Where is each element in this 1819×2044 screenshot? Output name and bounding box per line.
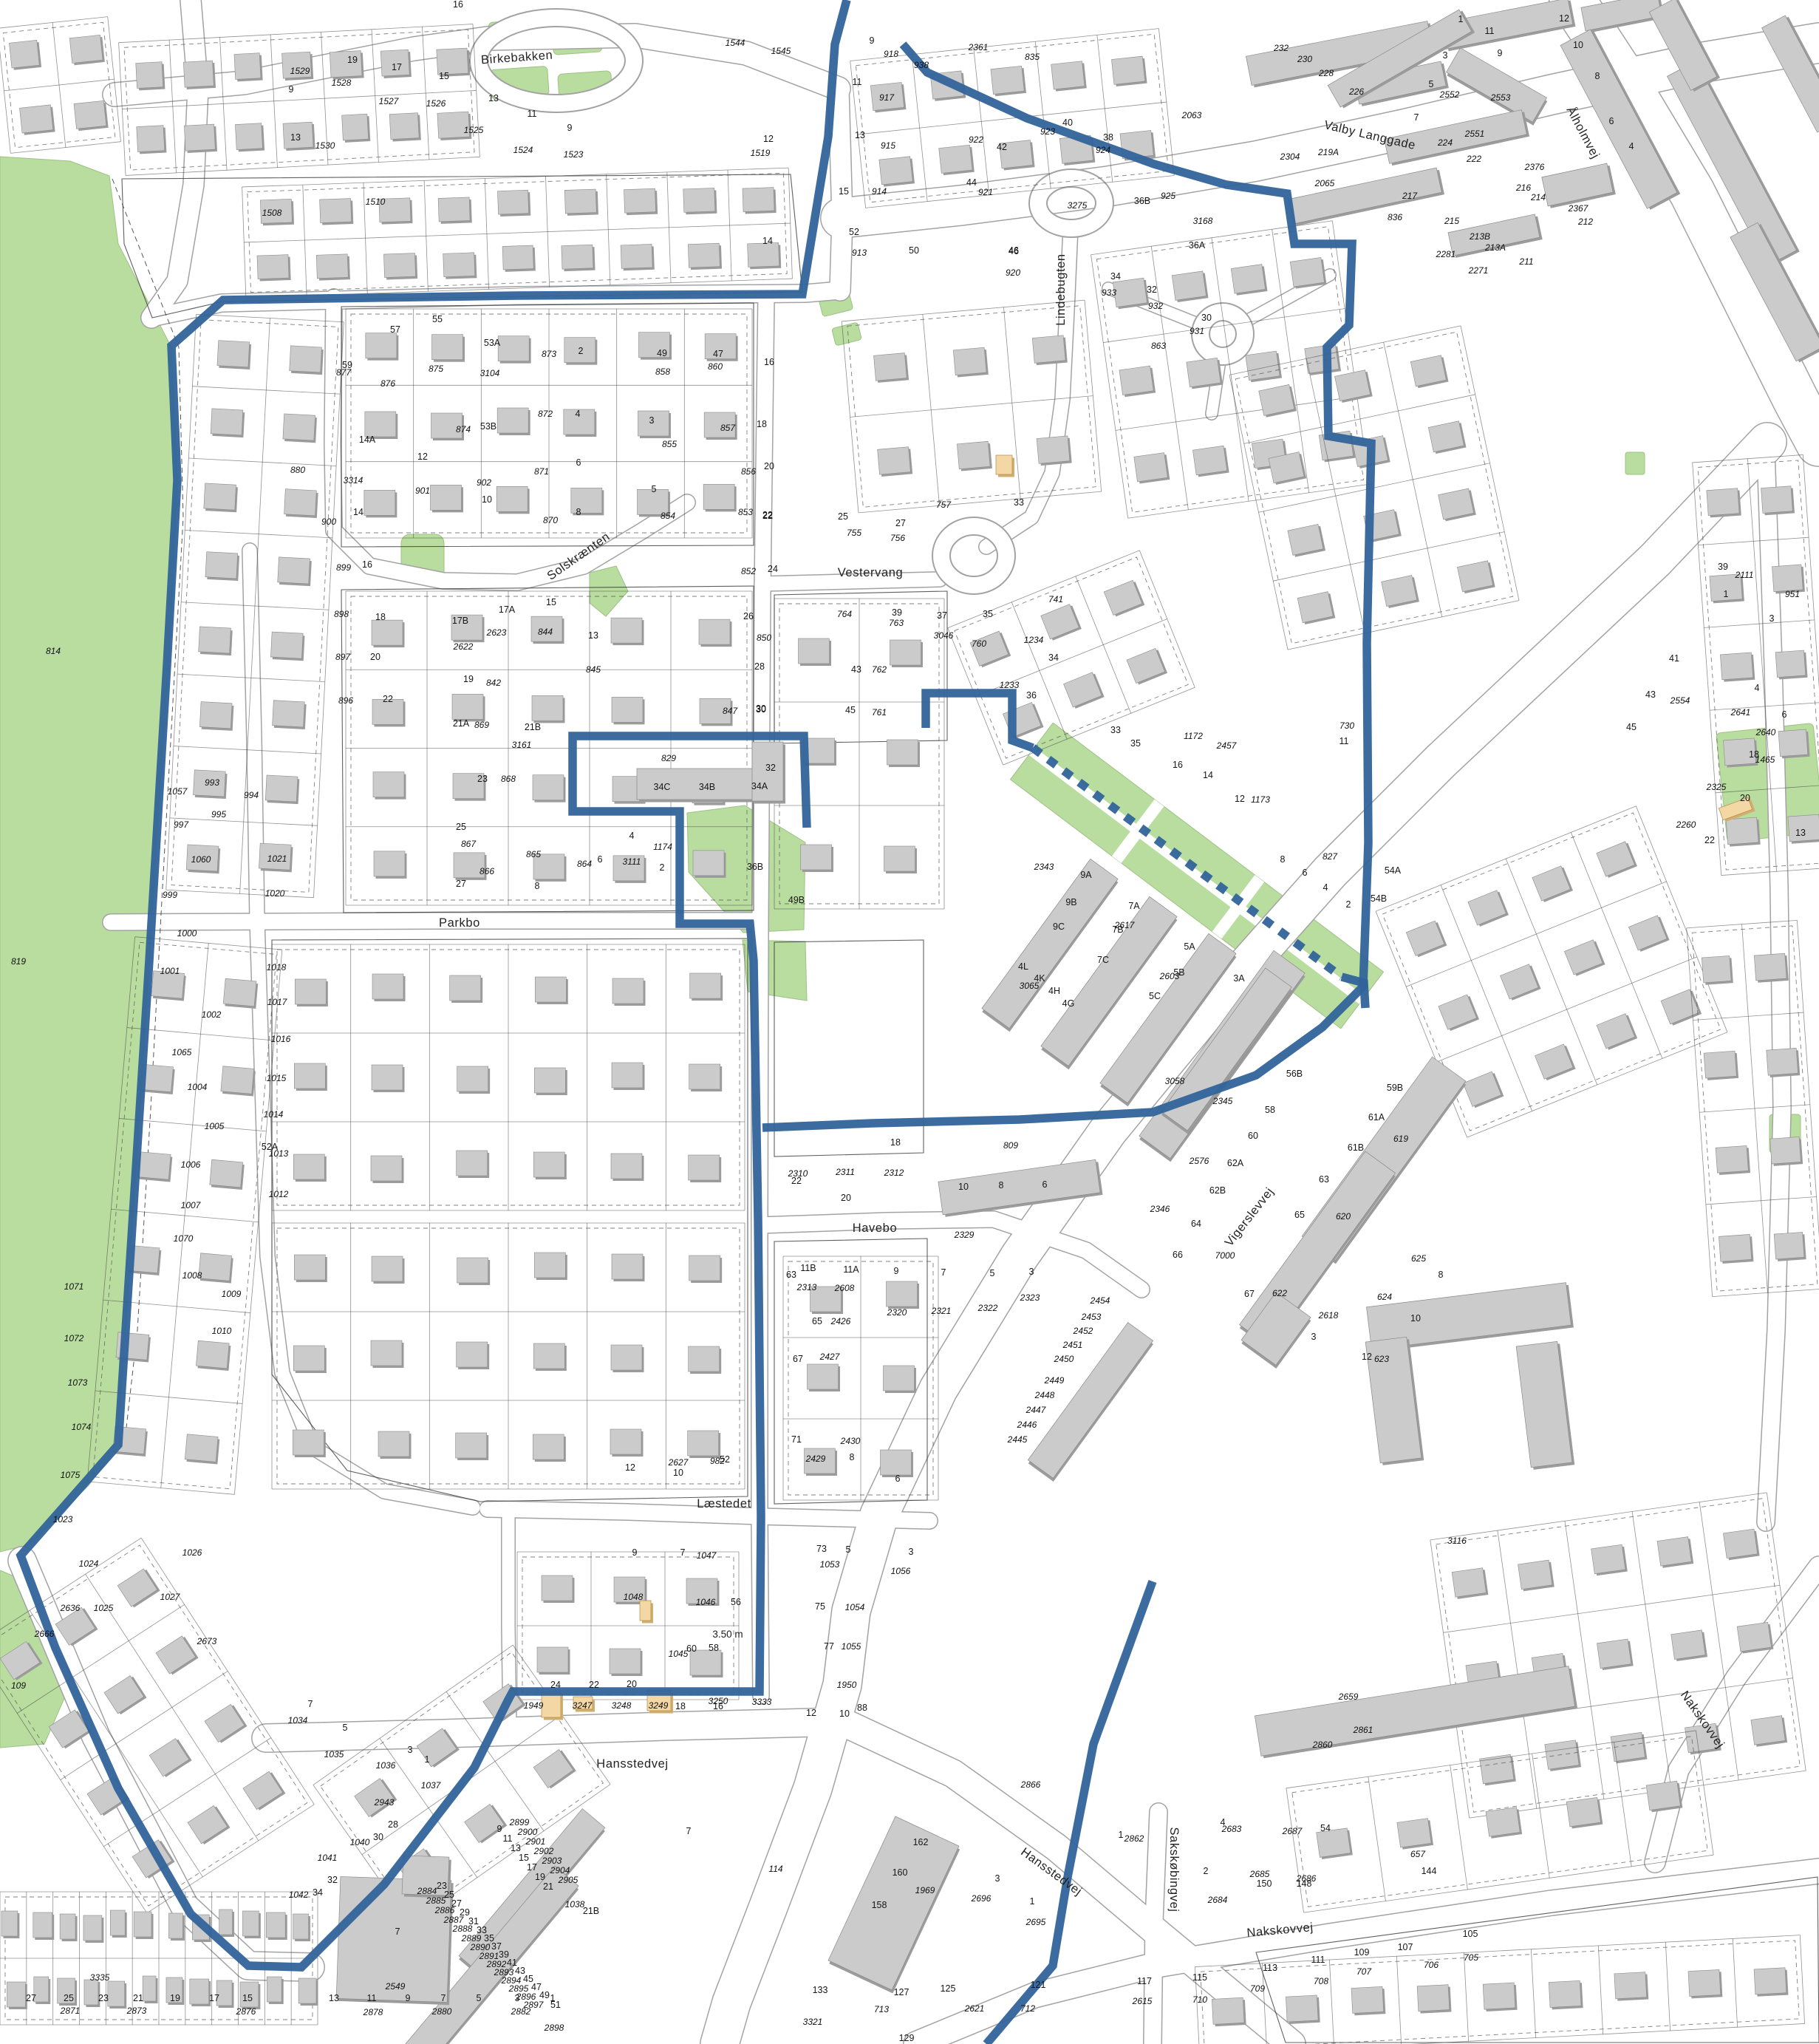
parcel-number-label: 847: [723, 706, 738, 716]
parcel-line: [1368, 1776, 1386, 1901]
parcel-number-label: 853: [738, 507, 753, 517]
house-number-label: 21B: [583, 1906, 599, 1916]
house-number-label: 6: [895, 1474, 901, 1484]
building: [1, 1911, 18, 1936]
building: [612, 697, 643, 722]
house-number-label: 3: [1769, 613, 1775, 624]
house-number-label: 21A: [453, 718, 470, 729]
house-number-label: 22: [589, 1680, 599, 1690]
building: [612, 1254, 643, 1279]
map-canvas[interactable]: 1529152815271526152515241523153015101508…: [0, 0, 1819, 2044]
house-number-label: 24: [550, 1680, 561, 1690]
house-number-label: 39: [892, 607, 902, 618]
house-number-label: 4: [576, 409, 581, 419]
parcel-number-label: 2904: [550, 1865, 570, 1876]
parcel-line: [1665, 1942, 1670, 2031]
parcel-number-label: 2576: [1189, 1156, 1209, 1166]
house-number-label: 17A: [499, 604, 516, 615]
building: [74, 101, 106, 129]
house-number-label: 5: [846, 1544, 851, 1555]
building: [372, 1256, 403, 1281]
parcel-number-label: 2551: [1464, 129, 1485, 139]
parcel-number-label: 876: [380, 378, 395, 389]
building: [1452, 1568, 1486, 1598]
building: [624, 188, 655, 213]
building: [1037, 436, 1070, 464]
house-number-label: 64: [1191, 1219, 1201, 1229]
parcel-number-label: 1020: [265, 888, 285, 899]
building: [1726, 817, 1758, 845]
building: [1772, 565, 1803, 592]
house-number-label: 162: [913, 1837, 929, 1847]
parcel-number-label: 2902: [533, 1846, 554, 1856]
parcel-number-label: 623: [1374, 1354, 1389, 1364]
house-number-label: 9A: [1080, 870, 1092, 880]
house-number-label: 53B: [480, 421, 496, 432]
house-number-label: 15: [839, 186, 849, 197]
parcel-number-label: 925: [1161, 191, 1175, 201]
parcel-number-label: 1034: [288, 1715, 308, 1726]
house-number-label: 77: [824, 1641, 834, 1652]
house-number-label: 15: [242, 1993, 253, 2003]
house-number-label: 32: [327, 1875, 338, 1885]
street-name-label: Lindebugten: [1054, 253, 1068, 325]
building: [957, 441, 990, 469]
parcel-number-label: 3104: [480, 368, 500, 378]
house-number-label: 3: [408, 1745, 413, 1755]
building: [1671, 1630, 1705, 1660]
house-number-label: 2: [660, 862, 665, 873]
building: [1751, 1716, 1785, 1745]
house-number-label: 9: [497, 1824, 502, 1834]
building: [690, 1650, 721, 1675]
house-number-label: 45: [1626, 722, 1637, 732]
house-number-label: 88: [857, 1703, 867, 1713]
parcel-number-label: 2882: [511, 2006, 531, 2017]
parcel-number-label: 114: [768, 1864, 782, 1874]
measurement-annotation: 3.50 m: [712, 1629, 743, 1640]
building: [688, 243, 720, 268]
parcel-number-label: 3333: [752, 1697, 772, 1707]
building: [117, 1569, 157, 1607]
house-number-label: 4: [1755, 683, 1760, 693]
parcel-number-label: 2878: [363, 2007, 383, 2017]
road: [1766, 451, 1782, 1522]
building: [7, 1982, 25, 2007]
parcel-number-label: 3161: [512, 740, 532, 750]
building: [533, 1152, 564, 1177]
building: [1397, 1819, 1431, 1848]
building: [1720, 653, 1753, 680]
parcel-number-label: 864: [577, 859, 592, 869]
parcel-number-label: 915: [881, 140, 895, 151]
house-number-label: 25: [64, 1993, 74, 2003]
parcel-number-label: 914: [872, 186, 887, 197]
parcel-number-label: 1001: [160, 966, 180, 976]
house-number-label: 63: [786, 1270, 796, 1280]
parcel-number-label: 2449: [1044, 1375, 1065, 1386]
parcel-number-label: 620: [1336, 1211, 1351, 1222]
parcel-number-label: 224: [1437, 137, 1453, 148]
parcel-number-label: 1072: [64, 1333, 84, 1343]
house-number-label: 9: [632, 1547, 638, 1558]
parcel-number-label: 2603: [1159, 971, 1180, 981]
house-number-label: 7: [1414, 112, 1419, 123]
house-number-label: 11: [528, 109, 537, 119]
building: [1707, 488, 1739, 516]
building: [210, 1159, 243, 1188]
building: [1351, 1986, 1384, 2013]
parcel-number-label: 2903: [542, 1856, 562, 1866]
parcel-number-label: 2608: [834, 1283, 855, 1293]
house-number-label: 7A: [1128, 901, 1140, 911]
parcel-number-label: 2876: [236, 2006, 256, 2017]
road: [111, 921, 760, 922]
house-number-label: 25: [838, 511, 848, 522]
parcel-number-label: 1046: [696, 1597, 716, 1607]
building: [373, 772, 404, 797]
parcel-number-label: 764: [837, 609, 852, 619]
parcel-number-label: 900: [321, 517, 336, 527]
building: [293, 1430, 324, 1455]
house-number-label: 43: [1645, 689, 1656, 700]
house-number-label: 20: [627, 1679, 637, 1689]
parcel-number-label: 757: [936, 500, 952, 510]
building-group: [1542, 163, 1616, 208]
building: [243, 1771, 283, 1809]
house-number-label: 14A: [359, 435, 376, 445]
house-number-label: 16: [453, 0, 463, 10]
house-number-label: 18: [890, 1137, 901, 1148]
building: [372, 620, 403, 645]
building: [456, 1433, 487, 1458]
house-number-label: 41: [1669, 653, 1679, 664]
parcel-number-label: 214: [1530, 192, 1546, 202]
parcel-number-label: 213B: [1469, 231, 1490, 242]
house-number-label: 35: [1130, 738, 1141, 749]
house-number-label: 2: [1204, 1866, 1209, 1876]
building: [438, 197, 470, 222]
house-number-label: 2: [1346, 899, 1351, 910]
parcel-number-label: 856: [741, 466, 756, 477]
house-number-label: 33: [1110, 725, 1121, 735]
parcel-number-label: 951: [1785, 589, 1800, 599]
house-number-label: 5A: [1184, 941, 1195, 952]
building: [1597, 1639, 1631, 1669]
parcel-number-label: 212: [1577, 217, 1593, 227]
house-number-label: 12: [1559, 13, 1569, 24]
house-number-label: 9: [406, 1993, 411, 2003]
building: [450, 975, 481, 1001]
cadastral-map-view: 1529152815271526152515241523153015101508…: [0, 0, 1819, 2044]
building: [60, 1914, 75, 1939]
house-number-label: 26: [743, 611, 754, 621]
house-number-label: 66: [1173, 1250, 1183, 1260]
house-number-label: 33: [1014, 497, 1024, 508]
house-number-label: 36A: [1189, 240, 1206, 251]
parcel-number-label: 1065: [172, 1047, 192, 1057]
building: [389, 113, 419, 140]
building: [1032, 335, 1065, 364]
building-group: [1255, 1666, 1577, 1759]
house-number-label: 20: [370, 652, 380, 662]
parcel-number-label: 2448: [1034, 1390, 1055, 1400]
road: [266, 1722, 842, 1738]
building: [383, 253, 415, 278]
building-group: [1026, 1323, 1155, 1482]
parcel-number-label: 2329: [954, 1230, 975, 1240]
parcel-number-label: 913: [852, 248, 867, 258]
building: [234, 53, 261, 80]
street-name-label: Læstedet: [697, 1497, 751, 1510]
building: [808, 1364, 839, 1389]
parcel-number-label: 2063: [1181, 110, 1202, 120]
parcel-number-label: 1174: [653, 842, 672, 852]
parcel-number-label: 2260: [1676, 820, 1696, 830]
parcel-line: [1710, 703, 1819, 710]
building: [611, 1154, 642, 1179]
parcel-line: [1733, 1938, 1737, 2027]
parcel-number-label: 1526: [426, 98, 446, 109]
parcel-number-label: 2451: [1062, 1340, 1083, 1350]
parcel-number-label: 2659: [1338, 1692, 1359, 1702]
parcel-grid: [1687, 920, 1819, 1296]
parcel-number-label: 869: [474, 720, 489, 730]
parcel-number-label: 1008: [182, 1270, 202, 1281]
parcel-number-label: 2111: [1735, 570, 1754, 580]
house-number-label: 56B: [1286, 1069, 1303, 1079]
parcel-number-label: 854: [661, 511, 675, 521]
house-number-label: 49: [657, 348, 667, 358]
building: [690, 973, 721, 998]
building: [1305, 344, 1339, 374]
parcel-number-label: 897: [335, 652, 351, 662]
parcel-number-label: 896: [338, 695, 353, 706]
house-number-label: 13: [1795, 828, 1806, 838]
parcel-number-label: 1529: [290, 66, 310, 76]
parcel-number-label: 997: [174, 820, 189, 830]
building: [1111, 56, 1144, 84]
building: [699, 619, 730, 644]
building: [689, 1256, 720, 1281]
building: [265, 775, 298, 802]
house-number-label: 7: [395, 1927, 400, 1937]
building: [611, 1345, 642, 1370]
house-number-label: 44: [966, 177, 977, 188]
parcel-number-label: 1172: [1184, 731, 1203, 741]
building: [996, 455, 1012, 474]
highlighted-building: [542, 1692, 563, 1720]
parcel-number-label: 619: [1393, 1134, 1408, 1144]
parcel-number-label: 844: [538, 627, 553, 637]
house-number-label: 50: [909, 245, 919, 256]
building: [1614, 1972, 1647, 1999]
building: [683, 188, 715, 212]
house-number-label: 8: [1280, 854, 1286, 865]
house-number-label: 4G: [1062, 998, 1075, 1009]
house-number-label: 8: [535, 881, 540, 891]
house-number-label: 105: [1463, 1929, 1478, 1939]
parcel-number-label: 923: [1040, 126, 1055, 137]
building: [293, 1914, 309, 1939]
house-number-label: 17: [527, 1862, 537, 1873]
highlighted-building: [640, 1601, 653, 1624]
building: [9, 40, 39, 68]
building: [1187, 358, 1221, 387]
parcel-number-label: 1023: [53, 1514, 73, 1525]
parcel-line: [126, 157, 480, 175]
house-number-label: 4H: [1048, 986, 1060, 996]
parcel-number-label: 2685: [1249, 1869, 1270, 1879]
parcel-number-label: 2376: [1524, 162, 1545, 172]
house-number-label: 158: [872, 1900, 887, 1910]
house-number-label: 10: [673, 1468, 683, 1478]
building: [443, 253, 475, 277]
parcel-number-label: 2673: [197, 1636, 217, 1646]
parcel-grid: [0, 1892, 318, 2025]
building: [542, 1692, 561, 1717]
house-number-label: 144: [1422, 1866, 1437, 1876]
house-number-label: 121: [1031, 1980, 1046, 1990]
house-number-label: 59: [342, 360, 352, 370]
house-number-label: 27: [26, 1993, 36, 2003]
parcel-line: [0, 17, 108, 29]
parcel-number-label: 872: [538, 409, 553, 419]
house-number-label: 32: [765, 763, 776, 773]
parcel-number-label: 1047: [697, 1550, 717, 1561]
parcel-number-label: 867: [461, 839, 477, 849]
house-number-label: 12: [625, 1462, 635, 1473]
house-number-label: 3: [515, 1993, 520, 2003]
parcel-number-label: 109: [11, 1680, 26, 1691]
house-number-label: 60: [686, 1643, 697, 1654]
parcel-number-label: 1519: [751, 148, 771, 158]
parcel-number-label: 3321: [803, 2017, 823, 2027]
parcel-number-label: 1055: [842, 1641, 861, 1652]
parcel-number-label: 2885: [426, 1895, 446, 1906]
parcel-number-label: 858: [655, 367, 670, 377]
house-number-label: 1: [1030, 1896, 1035, 1907]
house-number-label: 12: [806, 1708, 816, 1718]
parcel-number-label: 2549: [385, 1981, 406, 1992]
house-number-label: 24: [768, 564, 778, 574]
building: [612, 978, 644, 1004]
building: [1774, 1232, 1804, 1259]
parcel-number-label: 2325: [1706, 782, 1727, 792]
house-number-label: 34: [1048, 653, 1059, 663]
building: [211, 409, 243, 435]
parcel-number-label: 216: [1515, 183, 1531, 193]
house-number-label: 28: [388, 1819, 398, 1830]
building: [199, 702, 232, 729]
parcel-number-label: 1508: [262, 208, 282, 218]
street-name-label: Sakskøbingvej: [1167, 1827, 1181, 1912]
parcel-number-label: 3046: [934, 630, 954, 641]
building: [610, 1429, 641, 1454]
parcel-number-label: 1045: [669, 1649, 689, 1659]
parcel-line: [1396, 1956, 1401, 2044]
building: [533, 1434, 564, 1459]
house-number-label: 6: [576, 457, 581, 468]
building: [1483, 1983, 1515, 2009]
building: [564, 189, 596, 214]
house-number-label: 22: [383, 694, 393, 704]
building: [1566, 1797, 1600, 1827]
house-number-label: 17B: [452, 616, 468, 626]
parcel-number-label: 902: [477, 477, 491, 488]
building: [452, 694, 483, 719]
parcel-number-label: 993: [205, 777, 219, 788]
house-number-label: 57: [390, 324, 400, 335]
parcel-number-label: 2873: [126, 2006, 147, 2016]
parcel-number-label: 2880: [431, 2006, 452, 2017]
house-number-label: 16: [1173, 760, 1183, 770]
building-group: [827, 1816, 961, 1993]
parcel-number-label: 866: [480, 866, 494, 876]
house-number-label: 15: [546, 597, 556, 607]
building: [293, 1154, 324, 1179]
house-number-label: 30: [373, 1832, 383, 1842]
parcel-number-label: 226: [1348, 86, 1364, 97]
building: [534, 1068, 565, 1093]
house-number-label: 34: [313, 1887, 323, 1898]
parcel-number-label: 1950: [837, 1680, 857, 1690]
parcel-number-label: 2445: [1007, 1434, 1028, 1445]
house-number-label: 5: [652, 484, 657, 494]
house-number-label: 52A: [262, 1142, 279, 1152]
building: [498, 336, 529, 361]
parcel-number-label: 994: [244, 790, 259, 800]
parcel-number-label: 814: [46, 646, 61, 656]
parcel-number-label: 2618: [1318, 1310, 1339, 1321]
parcel-number-label: 829: [661, 753, 676, 763]
house-number-label: 11: [853, 77, 862, 87]
parcel-number-label: 2447: [1025, 1405, 1047, 1415]
parcel-number-label: 2304: [1280, 151, 1300, 162]
building: [1028, 1323, 1153, 1479]
house-number-label: 73: [816, 1544, 827, 1554]
building: [372, 974, 403, 999]
house-number-label: 148: [1297, 1878, 1312, 1889]
parcel-number-label: 2346: [1150, 1204, 1170, 1214]
house-number-label: 32: [1147, 285, 1157, 295]
house-number-label: 18: [757, 419, 767, 429]
building: [689, 1346, 720, 1372]
house-number-label: 13: [588, 630, 598, 641]
parcel-number-label: 2943: [374, 1797, 395, 1808]
parcel-number-label: 1056: [891, 1566, 911, 1576]
house-number-label: 58: [1265, 1105, 1275, 1115]
house-number-label: 21B: [525, 722, 541, 732]
parcel-number-label: 755: [847, 528, 861, 538]
house-number-label: 16: [362, 559, 372, 570]
building: [1255, 1666, 1574, 1757]
building: [431, 485, 462, 510]
building: [533, 1749, 573, 1788]
building: [1775, 650, 1806, 678]
road-casing: [720, 442, 1767, 2044]
building: [320, 199, 352, 223]
house-number-label: 117: [1137, 1976, 1152, 1986]
parcel-number-label: 710: [1192, 1994, 1207, 2005]
building: [69, 35, 103, 63]
house-number-label: 113: [1263, 1963, 1277, 1973]
parcel-number-label: 1035: [324, 1749, 344, 1759]
building: [562, 245, 593, 269]
parcel-number-label: 880: [290, 465, 305, 475]
parcel-number-label: 2623: [486, 627, 507, 638]
parcel-number-label: 624: [1377, 1292, 1392, 1302]
